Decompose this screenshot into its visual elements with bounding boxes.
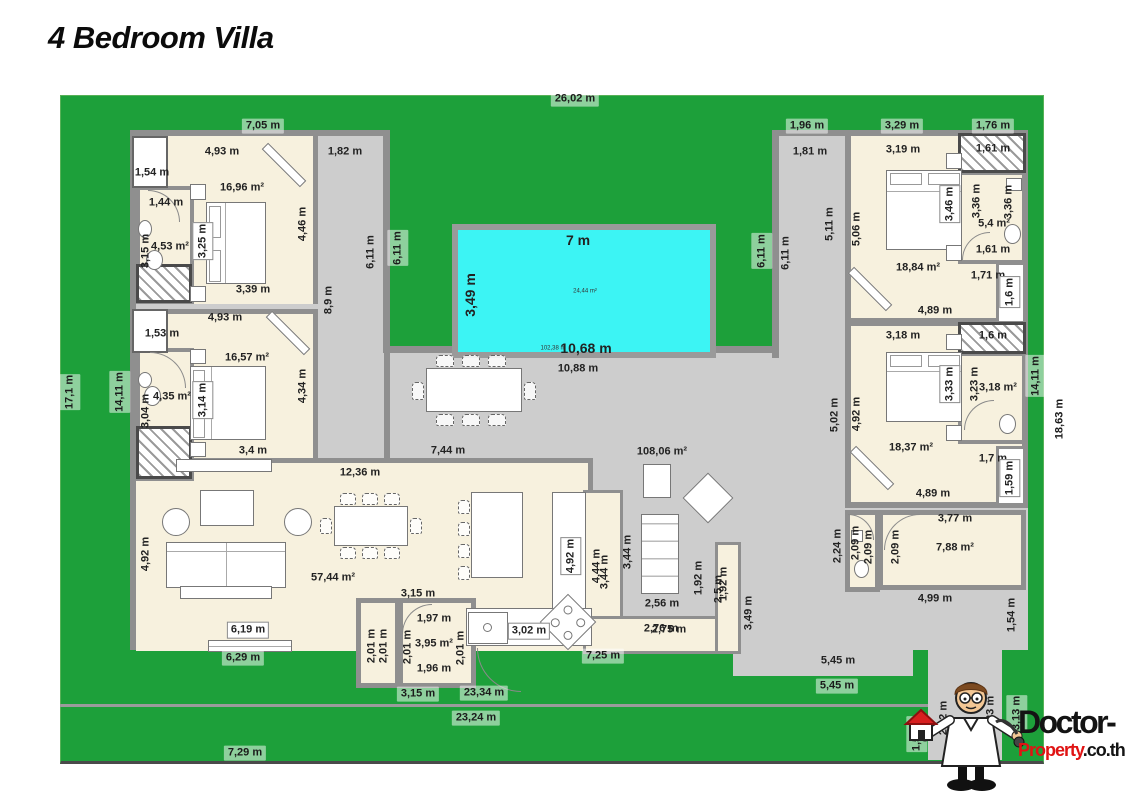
dimension-label: 4,92 m — [851, 397, 864, 431]
kitchen-sink — [468, 612, 508, 644]
dimension-label: 4,89 m — [918, 305, 952, 318]
dimension-label: 7,25 m — [582, 649, 624, 664]
dimension-label: 1,61 m — [976, 143, 1010, 156]
dimension-label: 6,11 m — [780, 236, 793, 270]
outdoor-chair — [436, 355, 454, 367]
bar-stool — [458, 522, 470, 536]
dimension-label: 3,15 m — [401, 588, 435, 601]
dimension-label: 3,46 m — [940, 185, 961, 223]
dimension-label: 23,34 m — [460, 686, 508, 701]
dimension-label: 7,05 m — [242, 119, 284, 134]
dimension-label: 4,92 m — [140, 537, 153, 571]
page-title: 4 Bedroom Villa — [48, 20, 274, 56]
nightstand — [190, 286, 206, 302]
dimension-label: 6,11 m — [752, 233, 773, 269]
dimension-label: 1,54 m — [135, 167, 169, 180]
dimension-label: 7,44 m — [431, 445, 465, 458]
floor-plan: 26,02 m7,05 m1,96 m3,29 m1,76 m4,93 m1,8… — [0, 0, 1140, 798]
dimension-label: 3,77 m — [938, 513, 972, 526]
logo-text-doctor: Doctor- — [1018, 706, 1140, 740]
dimension-label: 5,02 m — [829, 398, 842, 432]
dimension-label: 3,95 m² — [415, 638, 453, 651]
bar-stool — [458, 566, 470, 580]
dimension-label: 5,45 m — [816, 679, 858, 694]
dimension-label: 4,92 m — [561, 537, 582, 575]
dimension-label: 10,88 m — [558, 363, 598, 376]
dimension-label: 5,4 m² — [978, 218, 1010, 231]
dimension-label: 3,33 m — [940, 365, 961, 403]
dimension-label: 3,04 m — [140, 394, 153, 428]
dimension-label: 2,09 m — [890, 530, 903, 564]
dimension-label: 8,9 m — [323, 286, 336, 314]
dimension-label: 3,4 m — [239, 445, 267, 458]
dimension-label: 57,44 m² — [311, 572, 355, 585]
dimension-label: 18,63 m — [1050, 398, 1071, 440]
patio-seat — [643, 464, 671, 498]
dimension-label: 14,11 m — [110, 371, 131, 413]
dimension-label: 1,44 m — [149, 197, 183, 210]
dimension-label: 7,29 m — [224, 746, 266, 761]
outdoor-chair — [488, 414, 506, 426]
outdoor-chair — [462, 414, 480, 426]
wall — [772, 130, 779, 358]
dimension-label: 23,24 m — [452, 711, 500, 726]
dimension-label: 3,18 m — [886, 330, 920, 343]
dining-chair — [320, 518, 332, 534]
armchair — [162, 508, 190, 536]
dimension-label: 4,53 m² — [151, 241, 189, 254]
outdoor-chair — [412, 382, 424, 400]
outdoor-chair — [488, 355, 506, 367]
sun-lounger — [641, 514, 679, 594]
dimension-label: 1,96 m — [786, 119, 828, 134]
garden-fence-line — [60, 704, 928, 707]
dimension-label: 2,09 m — [863, 530, 876, 564]
dimension-label: 24,44 m² — [573, 289, 597, 296]
outdoor-chair — [436, 414, 454, 426]
dimension-label: 2,01 m — [366, 629, 379, 663]
bed — [206, 202, 266, 284]
dimension-label: 3,18 m² — [979, 382, 1017, 395]
dimension-label: 1,6 m — [1000, 276, 1021, 308]
dining-chair — [340, 547, 356, 559]
dimension-label: 3,15 m — [140, 234, 153, 268]
dimension-label: 16,57 m² — [225, 352, 269, 365]
dimension-label: 6,19 m — [227, 622, 269, 639]
dimension-label: 1,92 m — [693, 561, 706, 595]
dimension-label: 3,14 m — [193, 381, 214, 419]
dimension-label: 1,61 m — [976, 244, 1010, 257]
nightstand — [946, 153, 962, 169]
dimension-label: 2,75 m — [652, 624, 686, 637]
dimension-label: 7,88 m² — [936, 542, 974, 555]
dimension-label: 5,45 m — [821, 655, 855, 668]
dimension-label: 3,19 m — [886, 144, 920, 157]
dimension-label: 1,82 m — [328, 146, 362, 159]
dimension-label: 3,39 m — [236, 284, 270, 297]
dimension-label: 2,09 m — [850, 526, 863, 560]
dimension-label: 4,34 m — [297, 369, 310, 403]
nightstand — [946, 245, 962, 261]
dimension-label: 18,84 m² — [896, 262, 940, 275]
dining-table — [334, 506, 408, 546]
nightstand — [946, 334, 962, 350]
dining-chair — [362, 547, 378, 559]
dimension-label: 4,46 m — [297, 207, 310, 241]
dimension-label: 3,44 m — [599, 555, 612, 589]
dimension-label: 6,11 m — [388, 230, 409, 266]
doctor-mascot-icon — [898, 672, 1038, 794]
dimension-label: 3,49 m — [462, 273, 478, 317]
shower-1 — [136, 264, 192, 303]
dimension-label: 12,36 m — [340, 467, 380, 480]
dimension-label: 16,96 m² — [220, 182, 264, 195]
toilet — [999, 414, 1016, 434]
dimension-label: 1,97 m — [417, 613, 451, 626]
dimension-label: 4,93 m — [205, 146, 239, 159]
dimension-label: 3,02 m — [508, 623, 550, 640]
dimension-label: 1,6 m — [979, 330, 1007, 343]
dimension-label: 1,53 m — [145, 328, 179, 341]
dining-chair — [410, 518, 422, 534]
dimension-label: 7 m — [566, 232, 590, 248]
nightstand — [190, 442, 206, 457]
sofa — [166, 542, 286, 588]
dimension-label: 2,01 m — [378, 629, 391, 663]
dimension-label: 3,15 m — [397, 687, 439, 702]
outdoor-chair — [462, 355, 480, 367]
kitchen-island — [471, 492, 523, 578]
dimension-label: 3,29 m — [881, 119, 923, 134]
dimension-label: 10,68 m — [560, 340, 611, 356]
coffee-table — [200, 490, 254, 526]
dimension-label: 1,81 m — [793, 146, 827, 159]
dining-chair — [340, 493, 356, 505]
outdoor-dining-table — [426, 368, 522, 412]
nightstand — [190, 184, 206, 200]
dining-chair — [384, 547, 400, 559]
dimension-label: 6,11 m — [365, 235, 378, 269]
dimension-label: 5,11 m — [824, 207, 837, 241]
nightstand — [190, 349, 206, 364]
outdoor-chair — [524, 382, 536, 400]
dimension-label: 4,99 m — [918, 593, 952, 606]
dimension-label: 4,35 m² — [153, 391, 191, 404]
dimension-label: 3,44 m — [622, 535, 635, 569]
dimension-label: 5,06 m — [851, 212, 864, 246]
dimension-label: 17,1 m — [60, 374, 81, 410]
dimension-label: 14,11 m — [1026, 355, 1047, 397]
bar-stool — [458, 500, 470, 514]
dimension-label: 1,59 m — [1000, 459, 1021, 497]
closet-1 — [132, 136, 168, 188]
sink — [138, 372, 152, 388]
armchair — [284, 508, 312, 536]
dimension-label: 1,54 m — [1006, 598, 1019, 632]
brand-logo: Doctor- Property.co.th — [1018, 706, 1140, 761]
dimension-label: 2,56 m — [645, 598, 679, 611]
driveway — [733, 588, 1028, 642]
dimension-label: 6,29 m — [222, 651, 264, 666]
dining-chair — [362, 493, 378, 505]
dimension-label: 2,24 m — [832, 529, 845, 563]
dimension-label: 3,49 m — [743, 596, 756, 630]
dining-chair — [384, 493, 400, 505]
dimension-label: 1,96 m — [417, 663, 451, 676]
dimension-label: 3,36 m — [971, 184, 984, 218]
dimension-label: 1,76 m — [972, 119, 1014, 134]
dimension-label: 2,01 m — [455, 631, 468, 665]
bar-stool — [458, 544, 470, 558]
sideboard — [176, 459, 272, 472]
logo-text-property: Property — [1018, 740, 1083, 760]
dimension-label: 3,25 m — [193, 222, 214, 260]
logo-text-coth: .co.th — [1083, 740, 1125, 760]
dimension-label: 108,06 m² — [637, 446, 687, 459]
dimension-label: 18,37 m² — [889, 442, 933, 455]
dimension-label: 1,92 m — [718, 567, 731, 601]
dimension-label: 3,36 m — [1003, 185, 1016, 219]
ottoman — [180, 586, 272, 599]
dimension-label: 4,89 m — [916, 488, 950, 501]
dimension-label: 26,02 m — [551, 92, 599, 107]
nightstand — [946, 425, 962, 441]
dimension-label: 3,23 m — [969, 367, 982, 401]
dimension-label: 2,01 m — [402, 630, 415, 664]
dimension-label: 4,93 m — [208, 312, 242, 325]
